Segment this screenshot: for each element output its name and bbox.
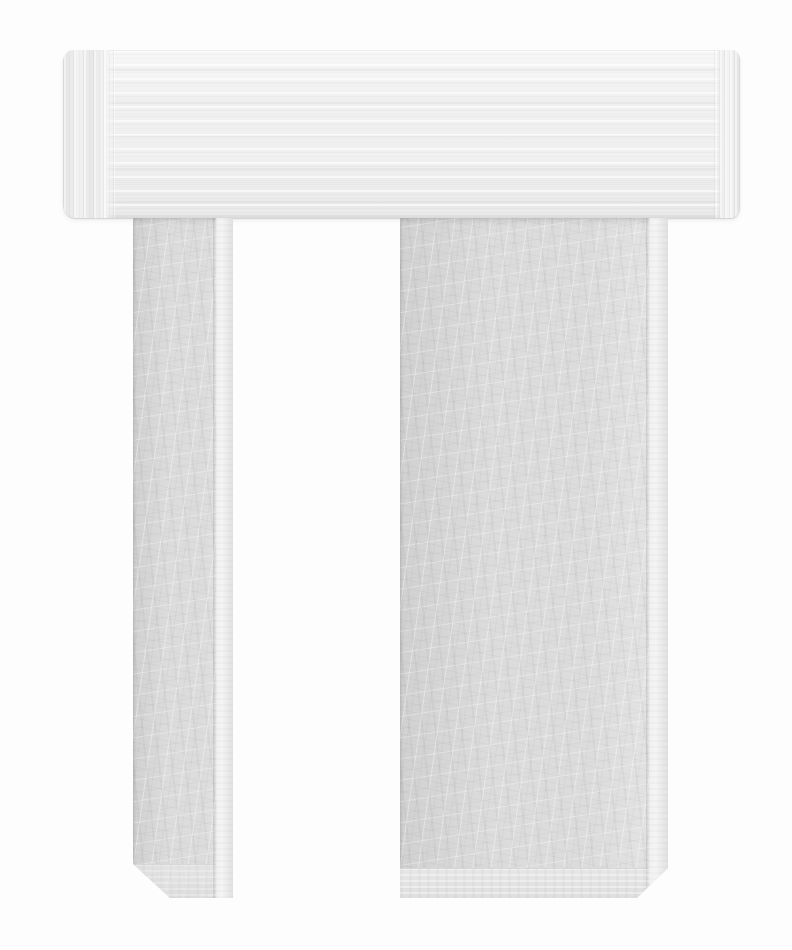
left-leg-side-face-strip	[213, 218, 233, 898]
right-leg-side-face-strip	[646, 218, 668, 898]
cap-rolled-edge-left	[63, 50, 115, 218]
right-leg	[400, 218, 668, 898]
left-leg	[133, 218, 233, 898]
right-leg-end-band	[400, 868, 668, 898]
cap-top-crossbar	[63, 50, 740, 218]
cap-brushed-face	[63, 50, 740, 218]
product-photo	[0, 0, 792, 950]
cap-rolled-edge-right	[714, 50, 740, 218]
